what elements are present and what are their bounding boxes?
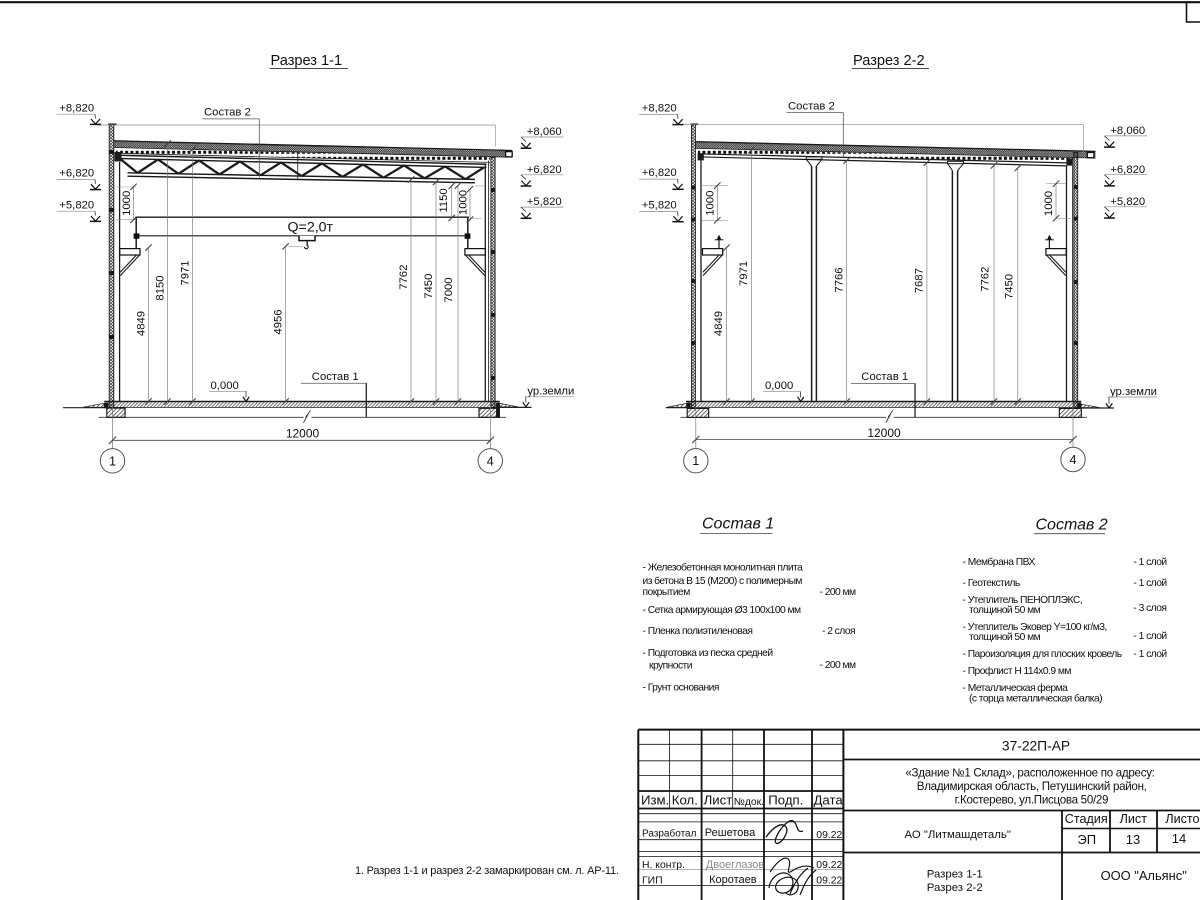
svg-text:ур.земли: ур.земли bbox=[527, 386, 574, 398]
svg-text:Состав 2: Состав 2 bbox=[788, 101, 835, 113]
svg-text:Разрез 1-1: Разрез 1-1 bbox=[271, 53, 343, 69]
svg-text:Разрез 2-2: Разрез 2-2 bbox=[927, 882, 983, 894]
svg-text:- 3 слоя: - 3 слоя bbox=[1133, 603, 1166, 614]
svg-text:13: 13 bbox=[1126, 832, 1140, 847]
svg-text:Изм.: Изм. bbox=[641, 793, 669, 808]
svg-text:Разрез 2-2: Разрез 2-2 bbox=[853, 53, 925, 69]
svg-text:ГИП: ГИП bbox=[642, 875, 663, 886]
svg-text:толщиной 50 мм: толщиной 50 мм bbox=[969, 632, 1041, 643]
svg-text:ООО "Альянс": ООО "Альянс" bbox=[1101, 868, 1188, 883]
svg-text:1000: 1000 bbox=[457, 190, 469, 215]
svg-text:12000: 12000 bbox=[867, 426, 901, 440]
svg-text:7000: 7000 bbox=[443, 277, 455, 302]
svg-text:крупности: крупности bbox=[649, 660, 693, 671]
svg-text:Разработал: Разработал bbox=[642, 828, 697, 840]
svg-text:8150: 8150 bbox=[155, 275, 167, 300]
svg-text:Н. контр.: Н. контр. bbox=[642, 860, 685, 871]
svg-text:ЭП: ЭП bbox=[1077, 832, 1096, 847]
svg-text:- 1 слой: - 1 слой bbox=[1133, 631, 1167, 642]
svg-text:- Металлическая ферма: - Металлическая ферма bbox=[963, 682, 1069, 694]
svg-text:- Железобетонная монолитная п: - Железобетонная монолитная плита bbox=[643, 562, 804, 574]
svg-text:1: 1 bbox=[692, 454, 699, 468]
svg-text:- Пароизоляция для плоских кро: - Пароизоляция для плоских кровель bbox=[963, 649, 1122, 660]
svg-text:+8,820: +8,820 bbox=[59, 102, 94, 114]
svg-text:Состав 1: Состав 1 bbox=[312, 371, 359, 383]
svg-text:Владимирская область, Петушинс: Владимирская область, Петушинский район, bbox=[917, 780, 1147, 793]
svg-text:09.22: 09.22 bbox=[816, 876, 842, 887]
svg-text:09.22: 09.22 bbox=[816, 860, 842, 871]
svg-text:4849: 4849 bbox=[136, 311, 148, 336]
svg-text:4: 4 bbox=[487, 454, 494, 468]
svg-text:7766: 7766 bbox=[833, 267, 845, 292]
svg-text:+6,820: +6,820 bbox=[527, 164, 562, 176]
svg-text:из бетона В 15 (М200) с полиме: из бетона В 15 (М200) с полимерным bbox=[643, 575, 803, 587]
svg-text:Листов: Листов bbox=[1165, 812, 1200, 826]
svg-text:1. Разрез 1-1 и разрез 2-2 зам: 1. Разрез 1-1 и разрез 2-2 замаркирован … bbox=[355, 865, 619, 877]
svg-text:Решетова: Решетова bbox=[705, 827, 756, 839]
svg-text:- 200 мм: - 200 мм bbox=[820, 587, 857, 598]
svg-text:- Грунт основания: - Грунт основания bbox=[643, 682, 719, 693]
svg-text:- 200 мм: - 200 мм bbox=[820, 660, 857, 671]
svg-text:- Профлист Н 114х0.9 мм: - Профлист Н 114х0.9 мм bbox=[963, 665, 1072, 677]
svg-text:Подп.: Подп. bbox=[768, 793, 803, 808]
svg-text:+6,820: +6,820 bbox=[1110, 164, 1145, 176]
svg-text:7450: 7450 bbox=[423, 274, 435, 299]
svg-text:1000: 1000 bbox=[705, 191, 717, 216]
svg-text:Коротаев: Коротаев bbox=[709, 874, 757, 886]
svg-text:+5,820: +5,820 bbox=[1110, 196, 1145, 208]
svg-text:1150: 1150 bbox=[438, 188, 450, 212]
svg-text:0,000: 0,000 bbox=[211, 380, 239, 392]
svg-text:ур.земли: ур.земли bbox=[1110, 386, 1157, 398]
svg-text:(с торца металлическая балка): (с торца металлическая балка) bbox=[969, 693, 1102, 705]
svg-text:покрытием: покрытием bbox=[643, 587, 691, 598]
svg-text:+6,820: +6,820 bbox=[59, 168, 94, 180]
svg-text:+8,060: +8,060 bbox=[527, 126, 562, 138]
svg-text:Стадия: Стадия bbox=[1065, 812, 1108, 826]
svg-text:+5,820: +5,820 bbox=[642, 200, 677, 212]
svg-text:Разрез 1-1: Разрез 1-1 bbox=[927, 869, 983, 881]
svg-text:- Подготовка из песка средней: - Подготовка из песка средней bbox=[643, 648, 774, 659]
svg-text:- Сетка армирующая Ø3 100х100: - Сетка армирующая Ø3 100х100 мм bbox=[643, 605, 802, 616]
svg-text:0,000: 0,000 bbox=[765, 380, 793, 392]
svg-text:- 1 слой: - 1 слой bbox=[1133, 649, 1167, 660]
svg-text:1: 1 bbox=[109, 454, 116, 468]
svg-text:Лист: Лист bbox=[704, 793, 733, 808]
svg-text:- 1 слой: - 1 слой bbox=[1133, 578, 1167, 589]
svg-text:Q=2,0т: Q=2,0т bbox=[288, 219, 334, 235]
svg-text:- Пленка полиэтиленовая: - Пленка полиэтиленовая bbox=[643, 626, 753, 637]
svg-text:4: 4 bbox=[1069, 453, 1076, 467]
svg-text:№док.: №док. bbox=[734, 797, 764, 808]
svg-text:Состав 2: Состав 2 bbox=[1036, 517, 1108, 534]
svg-text:+8,060: +8,060 bbox=[1110, 125, 1145, 137]
svg-text:+5,820: +5,820 bbox=[527, 196, 562, 208]
svg-text:4849: 4849 bbox=[713, 311, 725, 336]
svg-text:+5,820: +5,820 bbox=[59, 199, 94, 211]
svg-text:Дата: Дата bbox=[814, 793, 844, 808]
svg-text:Состав 2: Состав 2 bbox=[204, 106, 251, 118]
svg-text:толщиной 50 мм: толщиной 50 мм bbox=[969, 605, 1041, 616]
svg-text:7762: 7762 bbox=[398, 265, 410, 290]
svg-text:7762: 7762 bbox=[979, 267, 991, 292]
svg-text:г.Костерево, ул.Писцова 50/29: г.Костерево, ул.Писцова 50/29 bbox=[955, 793, 1109, 806]
svg-text:1000: 1000 bbox=[121, 191, 133, 216]
svg-text:Состав 1: Состав 1 bbox=[861, 371, 908, 383]
svg-text:- 1 слой: - 1 слой bbox=[1133, 557, 1167, 568]
svg-text:4956: 4956 bbox=[273, 309, 285, 334]
svg-text:12000: 12000 bbox=[286, 427, 320, 441]
svg-text:7687: 7687 bbox=[914, 268, 926, 293]
svg-text:+8,820: +8,820 bbox=[642, 103, 677, 115]
svg-text:АО "Литмашдеталь": АО "Литмашдеталь" bbox=[904, 829, 1010, 841]
svg-text:Состав 1: Состав 1 bbox=[702, 516, 774, 533]
svg-text:«Здание №1 Склад», расположенн: «Здание №1 Склад», расположенное по адре… bbox=[905, 766, 1154, 779]
svg-text:7971: 7971 bbox=[180, 260, 192, 285]
svg-text:Лист: Лист bbox=[1120, 812, 1148, 826]
svg-text:1000: 1000 bbox=[1043, 191, 1055, 216]
svg-text:7450: 7450 bbox=[1004, 274, 1016, 299]
svg-text:14: 14 bbox=[1172, 831, 1186, 846]
svg-text:+6,820: +6,820 bbox=[642, 167, 677, 179]
svg-text:Двоеглазов: Двоеглазов bbox=[706, 859, 765, 871]
svg-text:- Мембрана ПВХ: - Мембрана ПВХ bbox=[963, 556, 1036, 568]
svg-text:- 2 слоя: - 2 слоя bbox=[822, 626, 855, 637]
svg-text:Кол.: Кол. bbox=[672, 793, 698, 808]
svg-text:37-22П-АР: 37-22П-АР bbox=[1002, 738, 1070, 753]
svg-text:09.22: 09.22 bbox=[816, 830, 842, 841]
svg-text:7971: 7971 bbox=[738, 261, 750, 286]
svg-text:- Геотекстиль: - Геотекстиль bbox=[963, 578, 1020, 589]
